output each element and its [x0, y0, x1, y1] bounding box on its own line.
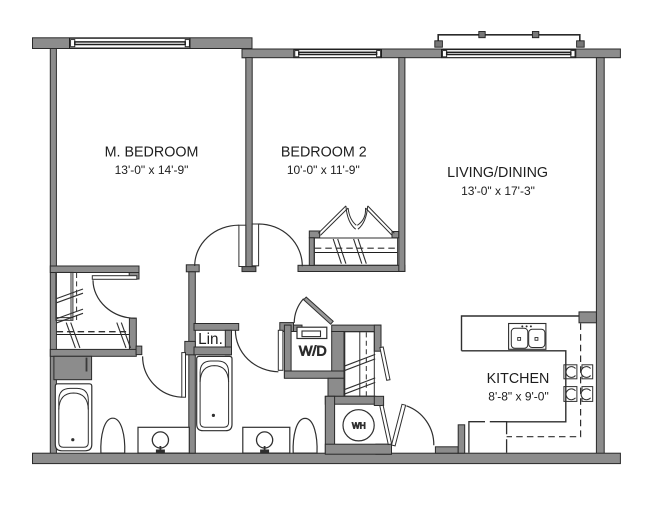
svg-text:13'-0" x 17'-3": 13'-0" x 17'-3"	[461, 184, 535, 198]
svg-text:WH: WH	[352, 421, 366, 430]
svg-text:W/D: W/D	[299, 343, 327, 359]
svg-text:LIVING/DINING: LIVING/DINING	[447, 165, 548, 181]
svg-text:Lin.: Lin.	[198, 331, 223, 348]
svg-text:10'-0" x 11'-9": 10'-0" x 11'-9"	[287, 163, 360, 177]
svg-text:M. BEDROOM: M. BEDROOM	[105, 144, 199, 160]
svg-text:8'-8" x 9'-0": 8'-8" x 9'-0"	[488, 390, 548, 404]
svg-text:13'-0" x 14'-9": 13'-0" x 14'-9"	[115, 163, 189, 177]
svg-text:BEDROOM 2: BEDROOM 2	[281, 144, 367, 160]
svg-text:KITCHEN: KITCHEN	[487, 371, 550, 387]
